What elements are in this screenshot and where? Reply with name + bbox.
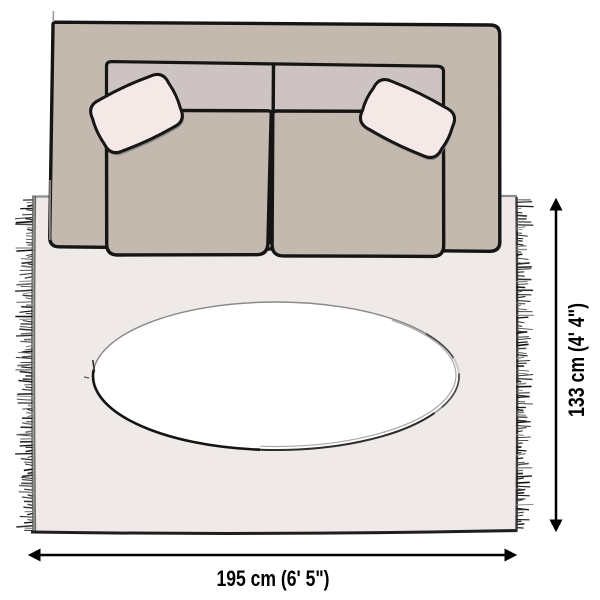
svg-text:133 cm (4' 4"): 133 cm (4' 4") bbox=[564, 303, 589, 417]
svg-text:195 cm (6' 5"): 195 cm (6' 5") bbox=[217, 566, 330, 591]
